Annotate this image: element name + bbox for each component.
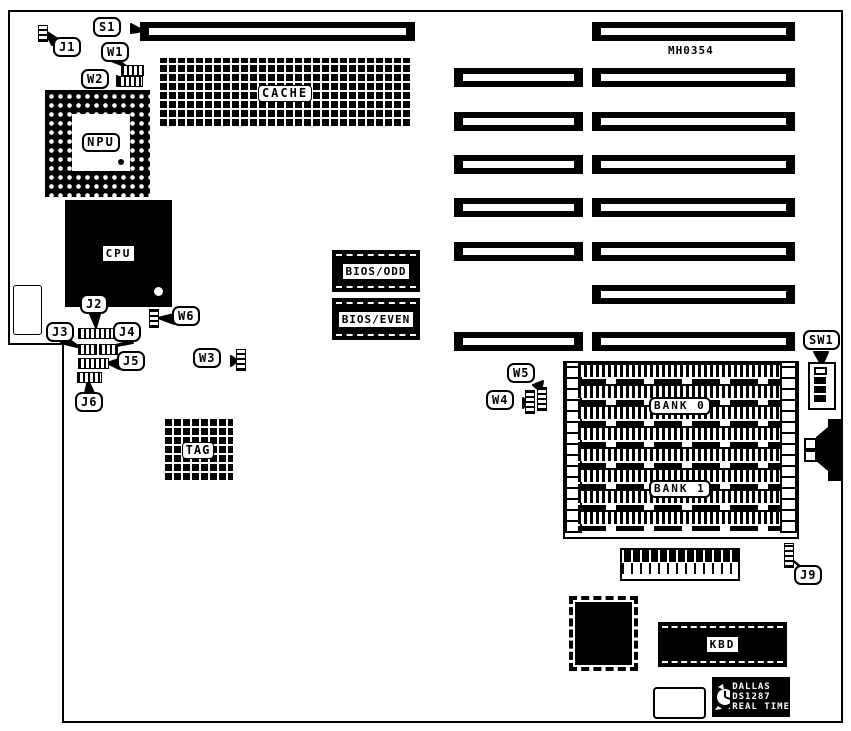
expansion-slot (592, 198, 795, 217)
j1-jumper (38, 25, 48, 42)
slot-stripe (601, 248, 786, 255)
callout-j9: J9 (794, 565, 822, 585)
simm-pins (578, 447, 780, 461)
oscillator (653, 687, 706, 719)
slot-stripe (601, 28, 786, 35)
callout-j4: J4 (113, 322, 141, 342)
simm-pins (578, 384, 780, 398)
dip-switch-position (814, 386, 826, 393)
dip-pins-top (336, 254, 416, 256)
callout-j1: J1 (53, 37, 81, 57)
j5-jumper (78, 358, 109, 369)
dip-switch-position (814, 377, 826, 384)
callout-j6: J6 (75, 392, 103, 412)
simm-socket (578, 447, 780, 468)
rtc-brand-text: DALLAS (732, 682, 790, 692)
qfp-chip (575, 602, 632, 665)
dip-pins-bottom (336, 334, 416, 336)
npu-socket: NPU (45, 90, 150, 197)
j9-jumper (784, 543, 794, 568)
callout-s1: S1 (93, 17, 121, 37)
slot-stripe (463, 338, 574, 345)
j6-jumper (77, 372, 102, 383)
expansion-slot (592, 285, 795, 304)
callout-j2: J2 (80, 294, 108, 314)
dip-pins-bottom (662, 661, 783, 663)
slot-stripe (601, 118, 786, 125)
expansion-slot (592, 22, 795, 41)
rtc-chip: DALLAS DS1287 REAL TIME (712, 677, 790, 717)
din-pin (804, 438, 817, 450)
expansion-slot (454, 242, 583, 261)
expansion-slot (454, 155, 583, 174)
j4-jumper (99, 344, 118, 355)
slot-stripe (463, 118, 574, 125)
npu-socket-center: NPU (72, 114, 130, 171)
slot-stripe (463, 74, 574, 81)
bios-odd-label: BIOS/ODD (343, 264, 410, 279)
s1-slot (140, 22, 415, 41)
power-connector-pins (622, 550, 738, 562)
simm-socket (578, 510, 780, 531)
expansion-slot (454, 68, 583, 87)
bios-odd-chip: BIOS/ODD (332, 250, 420, 292)
j3-jumper (78, 344, 97, 355)
w6-jumper (149, 309, 159, 328)
slot-stripe (601, 338, 786, 345)
motherboard-diagram: MH0354 S1 J1 W1 W2 J2 J3 J4 J5 J6 W3 W6 … (0, 0, 851, 731)
expansion-slot (592, 242, 795, 261)
simm-socket (578, 426, 780, 447)
slot-stripe (463, 248, 574, 255)
callout-sw1: SW1 (803, 330, 840, 350)
callout-w4: W4 (486, 390, 514, 410)
kbd-chip: KBD (658, 622, 787, 667)
npu-label: NPU (82, 133, 120, 152)
callout-j5: J5 (117, 351, 145, 371)
w4-jumper (525, 390, 535, 414)
dip-switch-position (814, 395, 826, 402)
j2-jumper (78, 328, 114, 339)
npu-pin1-dot (118, 159, 124, 165)
expansion-slot (592, 332, 795, 351)
slot-stripe (601, 291, 786, 298)
mounting-bracket (13, 285, 42, 335)
tag-chip-array: TAG (163, 418, 233, 482)
s1-slot-stripe (149, 28, 406, 35)
w1-jumper (121, 65, 144, 76)
slot-stripe (463, 204, 574, 211)
clock-icon (714, 683, 730, 711)
cpu-chip: CPU (65, 200, 172, 307)
power-connector-holes (622, 563, 738, 574)
bios-even-label: BIOS/EVEN (339, 312, 414, 327)
bank1-label: BANK 1 (649, 480, 711, 498)
dip-pins-top (662, 626, 783, 628)
callout-w5: W5 (507, 363, 535, 383)
callout-w3: W3 (193, 348, 221, 368)
bios-even-chip: BIOS/EVEN (332, 298, 420, 340)
slot-stripe (601, 74, 786, 81)
simm-pins (578, 510, 780, 524)
memory-bank-array: BANK 0 BANK 1 (563, 361, 799, 539)
simm-socket (578, 363, 780, 384)
expansion-slot (592, 155, 795, 174)
callout-w6: W6 (172, 306, 200, 326)
slot-stripe (601, 161, 786, 168)
simm-pins (578, 363, 780, 377)
simm-rows (578, 363, 780, 533)
board-id-text: MH0354 (668, 44, 714, 57)
bank0-label: BANK 0 (649, 397, 711, 415)
expansion-slot (454, 112, 583, 131)
power-connector (620, 548, 740, 581)
simm-rail-right (780, 363, 797, 533)
dip-switch-position (814, 367, 827, 375)
expansion-slot (454, 332, 583, 351)
din-pin (804, 450, 817, 462)
simm-pins (578, 426, 780, 440)
j2-callout-tail (90, 314, 100, 328)
cache-label: CACHE (258, 85, 312, 102)
kbd-label: KBD (707, 637, 739, 652)
tag-label: TAG (182, 442, 215, 459)
simm-body (578, 526, 780, 531)
expansion-slot (592, 68, 795, 87)
rtc-model-text: DS1287 (732, 692, 790, 702)
slot-stripe (463, 161, 574, 168)
cpu-label: CPU (103, 246, 135, 261)
callout-j3: J3 (46, 322, 74, 342)
slot-stripe (601, 204, 786, 211)
w2-jumper (118, 76, 143, 87)
keyboard-din-connector (816, 419, 842, 481)
dip-pins-bottom (336, 286, 416, 288)
w5-jumper (537, 387, 547, 411)
w3-jumper (236, 349, 246, 371)
expansion-slot (592, 112, 795, 131)
callout-w1: W1 (101, 42, 129, 62)
cache-chip-array: CACHE (158, 58, 412, 128)
callout-w2: W2 (81, 69, 109, 89)
rtc-type-text: REAL TIME (732, 702, 790, 712)
dip-pins-top (336, 302, 416, 304)
cpu-pin1-dot (154, 287, 163, 296)
sw1-dip-switch (808, 362, 836, 410)
expansion-slot (454, 198, 583, 217)
